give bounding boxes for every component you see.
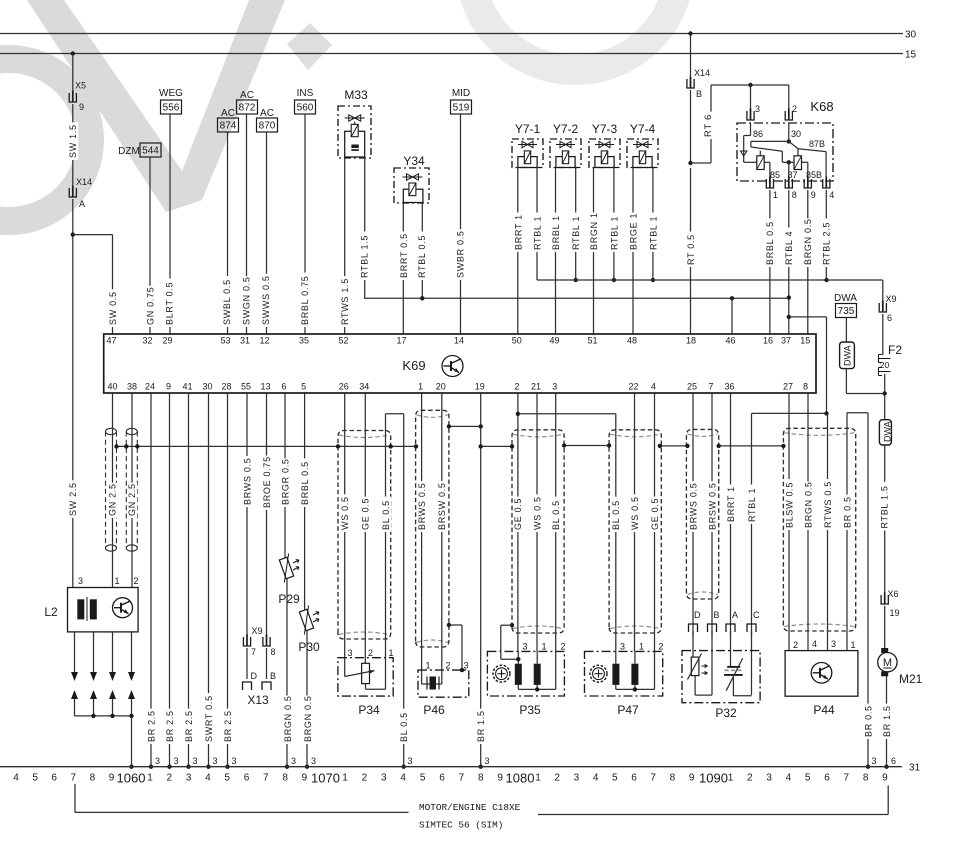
svg-text:48: 48: [627, 336, 637, 346]
svg-text:32: 32: [142, 336, 152, 346]
svg-text:BRGN 0.5: BRGN 0.5: [804, 481, 814, 528]
svg-text:20: 20: [436, 382, 446, 392]
svg-text:3: 3: [574, 773, 580, 784]
svg-text:30: 30: [905, 30, 917, 41]
svg-text:6: 6: [439, 773, 445, 784]
svg-text:AC: AC: [260, 108, 274, 119]
svg-text:3: 3: [620, 642, 625, 652]
svg-text:X14: X14: [76, 177, 92, 187]
svg-text:BRSW 0.5: BRSW 0.5: [437, 482, 447, 530]
svg-text:7: 7: [459, 773, 465, 784]
svg-text:1: 1: [773, 190, 778, 200]
svg-text:544: 544: [142, 146, 159, 157]
svg-text:SIMTEC 56 (SIM): SIMTEC 56 (SIM): [419, 820, 503, 831]
svg-text:35: 35: [299, 336, 309, 346]
svg-text:31: 31: [240, 336, 250, 346]
svg-text:RTWS 1.5: RTWS 1.5: [340, 278, 350, 325]
svg-text:3: 3: [311, 756, 316, 766]
svg-text:2: 2: [554, 773, 560, 784]
svg-text:2: 2: [167, 773, 173, 784]
svg-text:BRBL 1: BRBL 1: [551, 215, 561, 250]
svg-text:GE 0.5: GE 0.5: [361, 498, 371, 530]
svg-text:735: 735: [838, 306, 855, 317]
svg-text:25: 25: [687, 382, 697, 392]
svg-text:7: 7: [263, 773, 269, 784]
svg-text:BRGN 0.5: BRGN 0.5: [803, 218, 813, 265]
svg-text:6: 6: [891, 756, 896, 766]
svg-text:3: 3: [408, 756, 413, 766]
svg-text:SW 1.5: SW 1.5: [68, 124, 78, 158]
svg-text:RTBL 2.5: RTBL 2.5: [822, 222, 832, 265]
svg-text:Y7-1: Y7-1: [515, 122, 541, 136]
svg-text:BRSW 0.5: BRSW 0.5: [708, 482, 718, 530]
svg-text:DZM: DZM: [118, 146, 140, 157]
svg-text:K68: K68: [810, 99, 833, 114]
svg-text:8: 8: [792, 190, 797, 200]
svg-text:1: 1: [426, 661, 431, 671]
svg-text:A: A: [732, 610, 738, 620]
svg-text:RTBL 1: RTBL 1: [648, 216, 658, 250]
svg-text:7: 7: [650, 773, 656, 784]
svg-text:M21: M21: [899, 672, 923, 686]
svg-text:BR 2.5: BR 2.5: [147, 710, 157, 742]
svg-text:29: 29: [162, 336, 172, 346]
svg-text:SW 0.5: SW 0.5: [108, 291, 118, 325]
svg-text:9: 9: [109, 773, 115, 784]
svg-text:BRGE 1: BRGE 1: [629, 213, 639, 250]
svg-text:8: 8: [670, 773, 676, 784]
svg-text:D: D: [251, 671, 258, 681]
svg-text:RTBL 4: RTBL 4: [784, 231, 794, 265]
svg-text:Y7-4: Y7-4: [630, 122, 656, 136]
svg-text:RT 6: RT 6: [703, 114, 714, 137]
svg-text:3: 3: [381, 773, 387, 784]
svg-text:5: 5: [301, 382, 306, 392]
svg-text:6: 6: [631, 773, 637, 784]
svg-text:1: 1: [639, 642, 644, 652]
svg-text:6: 6: [281, 382, 286, 392]
svg-text:17: 17: [396, 336, 406, 346]
svg-text:9: 9: [497, 773, 503, 784]
svg-text:87B: 87B: [809, 139, 825, 149]
svg-text:BLSW 0.5: BLSW 0.5: [785, 482, 795, 528]
svg-text:5: 5: [805, 773, 811, 784]
svg-text:WS 0.5: WS 0.5: [340, 496, 350, 530]
svg-text:Y7-2: Y7-2: [553, 122, 579, 136]
svg-text:8: 8: [478, 773, 484, 784]
svg-text:2: 2: [793, 640, 798, 650]
svg-text:7: 7: [251, 647, 256, 657]
svg-text:P44: P44: [813, 703, 835, 717]
svg-text:3: 3: [766, 773, 772, 784]
svg-text:560: 560: [297, 103, 314, 114]
svg-text:6: 6: [244, 773, 250, 784]
svg-text:GN 2.5: GN 2.5: [127, 483, 137, 516]
svg-text:SWBR 0.5: SWBR 0.5: [456, 230, 466, 278]
svg-text:BRRT 1: BRRT 1: [513, 214, 523, 250]
svg-text:30: 30: [202, 382, 212, 392]
svg-text:2: 2: [561, 642, 566, 652]
svg-text:BR 0.5: BR 0.5: [864, 705, 874, 737]
svg-text:1060: 1060: [117, 771, 146, 786]
svg-text:RTBL 1: RTBL 1: [747, 488, 757, 522]
svg-text:5: 5: [420, 773, 426, 784]
svg-text:12: 12: [259, 336, 269, 346]
svg-text:9: 9: [79, 102, 84, 112]
svg-text:24: 24: [145, 382, 155, 392]
svg-text:26: 26: [339, 382, 349, 392]
svg-text:1: 1: [389, 648, 394, 658]
svg-text:3: 3: [213, 756, 218, 766]
svg-text:21: 21: [531, 382, 541, 392]
svg-text:46: 46: [725, 336, 735, 346]
svg-text:RTBL 1.5: RTBL 1.5: [880, 485, 890, 528]
svg-text:3: 3: [523, 642, 528, 652]
svg-text:8: 8: [863, 773, 869, 784]
svg-text:GE 0.5: GE 0.5: [513, 498, 523, 530]
svg-text:4: 4: [651, 382, 656, 392]
svg-text:BRWS 0.5: BRWS 0.5: [243, 458, 253, 505]
svg-text:X9: X9: [252, 626, 263, 636]
svg-text:3: 3: [552, 382, 557, 392]
svg-text:3: 3: [232, 756, 237, 766]
svg-text:9: 9: [811, 190, 816, 200]
svg-text:50: 50: [512, 336, 522, 346]
svg-text:2: 2: [362, 773, 368, 784]
svg-text:872: 872: [239, 103, 256, 114]
svg-text:7: 7: [71, 773, 77, 784]
svg-text:GE 0.5: GE 0.5: [650, 498, 660, 530]
svg-text:7: 7: [844, 773, 850, 784]
svg-text:1: 1: [542, 642, 547, 652]
svg-text:INS: INS: [297, 88, 314, 99]
svg-text:BRBL 0.5: BRBL 0.5: [300, 461, 310, 505]
svg-text:28: 28: [221, 382, 231, 392]
svg-text:RTBL 0.5: RTBL 0.5: [417, 235, 427, 278]
svg-text:86: 86: [753, 129, 763, 139]
svg-text:41: 41: [182, 382, 192, 392]
svg-text:M33: M33: [344, 88, 368, 102]
svg-text:P46: P46: [423, 703, 445, 717]
svg-text:SWBL 0.5: SWBL 0.5: [222, 279, 232, 325]
svg-text:P34: P34: [358, 703, 380, 717]
svg-text:X6: X6: [888, 589, 899, 599]
svg-text:8: 8: [90, 773, 96, 784]
svg-text:2: 2: [368, 648, 373, 658]
svg-text:30: 30: [791, 129, 801, 139]
svg-text:3: 3: [755, 104, 760, 114]
svg-text:BL 0.5: BL 0.5: [381, 500, 391, 530]
svg-text:9: 9: [302, 773, 308, 784]
svg-text:3: 3: [485, 756, 490, 766]
svg-text:3: 3: [193, 756, 198, 766]
svg-text:SW 2.5: SW 2.5: [68, 482, 78, 516]
svg-text:3: 3: [78, 576, 83, 586]
svg-text:8: 8: [271, 647, 276, 657]
svg-text:1080: 1080: [506, 771, 535, 786]
svg-text:1090: 1090: [699, 771, 728, 786]
svg-text:7: 7: [708, 382, 713, 392]
svg-text:15: 15: [905, 50, 917, 61]
svg-text:2: 2: [514, 382, 519, 392]
svg-text:3: 3: [831, 639, 836, 649]
svg-text:47: 47: [106, 336, 116, 346]
svg-text:9: 9: [689, 773, 695, 784]
svg-text:4: 4: [400, 773, 406, 784]
svg-text:RTBL 1: RTBL 1: [609, 216, 619, 250]
svg-text:13: 13: [260, 382, 270, 392]
svg-text:P30: P30: [298, 640, 320, 654]
svg-text:6: 6: [51, 773, 57, 784]
svg-text:34: 34: [359, 382, 369, 392]
svg-text:GN 0.75: GN 0.75: [146, 287, 156, 325]
svg-text:DWA: DWA: [843, 345, 853, 366]
svg-text:4: 4: [786, 773, 792, 784]
svg-text:BRGN 1: BRGN 1: [589, 212, 599, 250]
svg-text:BRRT 0.5: BRRT 0.5: [399, 233, 409, 278]
svg-text:AC: AC: [221, 108, 235, 119]
svg-text:BR 2.5: BR 2.5: [184, 710, 194, 742]
svg-text:1: 1: [115, 576, 120, 586]
svg-text:874: 874: [220, 121, 237, 132]
svg-text:3: 3: [348, 648, 353, 658]
svg-text:SWWS 0.5: SWWS 0.5: [261, 275, 271, 325]
svg-text:2: 2: [134, 576, 139, 586]
svg-text:1070: 1070: [311, 771, 340, 786]
svg-text:18: 18: [686, 336, 696, 346]
svg-text:B: B: [270, 671, 276, 681]
svg-text:6: 6: [824, 773, 830, 784]
svg-text:BR 0.5: BR 0.5: [843, 496, 853, 528]
svg-text:3: 3: [464, 661, 469, 671]
svg-text:WEG: WEG: [159, 88, 183, 99]
svg-text:14: 14: [454, 336, 464, 346]
svg-text:51: 51: [587, 336, 597, 346]
svg-text:19: 19: [475, 382, 485, 392]
svg-text:1: 1: [147, 773, 153, 784]
svg-text:27: 27: [783, 382, 793, 392]
svg-text:SWGN 0.5: SWGN 0.5: [242, 276, 252, 325]
svg-text:BRGN 0.5: BRGN 0.5: [303, 695, 313, 742]
svg-text:B: B: [696, 89, 702, 99]
svg-text:37: 37: [781, 336, 791, 346]
svg-text:556: 556: [163, 103, 180, 114]
svg-text:BR 2.5: BR 2.5: [165, 710, 175, 742]
svg-text:20: 20: [880, 360, 890, 370]
svg-text:4: 4: [593, 773, 599, 784]
svg-text:B: B: [714, 610, 720, 620]
svg-text:RT 0.5: RT 0.5: [686, 234, 696, 265]
svg-text:49: 49: [549, 336, 559, 346]
svg-text:BLRT 0.5: BLRT 0.5: [165, 282, 175, 325]
svg-text:BRWS 0.5: BRWS 0.5: [417, 483, 427, 530]
svg-text:WS 0.5: WS 0.5: [533, 496, 543, 530]
svg-text:3: 3: [291, 756, 296, 766]
svg-text:A: A: [79, 199, 85, 209]
svg-text:RTBL 1: RTBL 1: [533, 216, 543, 250]
svg-text:3: 3: [174, 756, 179, 766]
svg-text:8: 8: [282, 773, 288, 784]
svg-text:BRBL 0.5: BRBL 0.5: [765, 221, 775, 265]
svg-text:519: 519: [453, 103, 470, 114]
svg-text:2: 2: [446, 661, 451, 671]
svg-text:DWA: DWA: [834, 293, 857, 304]
svg-text:P29: P29: [278, 592, 300, 606]
svg-text:BR 2.5: BR 2.5: [223, 710, 233, 742]
svg-text:31: 31: [909, 763, 921, 774]
svg-text:16: 16: [763, 336, 773, 346]
svg-text:3: 3: [186, 773, 192, 784]
svg-text:WS 0.5: WS 0.5: [630, 496, 640, 530]
svg-text:BRBL 0.75: BRBL 0.75: [300, 276, 310, 326]
svg-text:19: 19: [890, 608, 900, 618]
svg-text:BR 1.5: BR 1.5: [882, 705, 892, 737]
svg-text:3: 3: [872, 756, 877, 766]
svg-text:P35: P35: [519, 703, 541, 717]
svg-text:Y34: Y34: [403, 154, 425, 168]
svg-text:L2: L2: [44, 605, 58, 619]
svg-text:1: 1: [851, 640, 856, 650]
svg-text:15: 15: [800, 336, 810, 346]
svg-text:4: 4: [205, 773, 211, 784]
svg-text:M: M: [883, 657, 892, 669]
svg-text:GN 2.5: GN 2.5: [108, 483, 118, 516]
svg-text:BRGR 0.5: BRGR 0.5: [281, 458, 291, 505]
svg-text:BL 0.5: BL 0.5: [611, 500, 621, 530]
svg-text:870: 870: [259, 121, 276, 132]
svg-text:5: 5: [224, 773, 230, 784]
svg-text:53: 53: [220, 336, 230, 346]
svg-text:F2: F2: [888, 343, 902, 357]
svg-text:BL 0.5: BL 0.5: [399, 712, 409, 742]
svg-text:RTWS 0.5: RTWS 0.5: [823, 481, 833, 528]
svg-text:BL 0.5: BL 0.5: [551, 500, 561, 530]
svg-text:SWRT 0.5: SWRT 0.5: [204, 695, 214, 742]
svg-text:3: 3: [155, 756, 160, 766]
svg-text:2: 2: [747, 773, 753, 784]
svg-text:DWA: DWA: [882, 421, 892, 442]
svg-text:5: 5: [32, 773, 38, 784]
svg-text:38: 38: [127, 382, 137, 392]
svg-text:Y7-3: Y7-3: [592, 122, 618, 136]
svg-text:5: 5: [612, 773, 618, 784]
svg-text:36: 36: [724, 382, 734, 392]
svg-text:MID: MID: [452, 88, 470, 99]
svg-text:P47: P47: [617, 703, 639, 717]
svg-text:P32: P32: [715, 706, 737, 720]
svg-text:40: 40: [107, 382, 117, 392]
svg-text:52: 52: [338, 336, 348, 346]
svg-text:C: C: [753, 610, 760, 620]
svg-text:4: 4: [829, 190, 834, 200]
svg-text:4: 4: [812, 639, 817, 649]
svg-text:2: 2: [659, 642, 664, 652]
svg-text:1: 1: [728, 773, 734, 784]
svg-text:BROE 0.75: BROE 0.75: [262, 456, 272, 508]
svg-text:X13: X13: [247, 693, 269, 707]
svg-text:MOTOR/ENGINE C18XE: MOTOR/ENGINE C18XE: [419, 802, 521, 813]
svg-text:RTBL 1.5: RTBL 1.5: [360, 235, 370, 278]
svg-text:55: 55: [241, 382, 251, 392]
svg-text:BRRT 1: BRRT 1: [726, 486, 736, 522]
svg-text:RTBL 1: RTBL 1: [571, 216, 581, 250]
svg-text:X14: X14: [694, 68, 710, 78]
svg-text:X5: X5: [75, 81, 86, 91]
svg-text:BRGN 0.5: BRGN 0.5: [283, 695, 293, 742]
svg-text:BR 1.5: BR 1.5: [476, 710, 486, 742]
svg-text:1: 1: [535, 773, 541, 784]
svg-text:85: 85: [770, 170, 780, 180]
svg-text:8: 8: [803, 382, 808, 392]
svg-text:1: 1: [418, 382, 423, 392]
svg-text:9: 9: [882, 773, 888, 784]
svg-text:22: 22: [628, 382, 638, 392]
svg-text:9: 9: [166, 382, 171, 392]
svg-text:K69: K69: [402, 358, 425, 373]
svg-text:4: 4: [13, 773, 19, 784]
svg-text:1: 1: [342, 773, 348, 784]
svg-text:AC: AC: [240, 90, 254, 101]
svg-text:X9: X9: [886, 294, 897, 304]
svg-text:D: D: [694, 610, 701, 620]
svg-text:BRWS 0.5: BRWS 0.5: [689, 483, 699, 530]
svg-text:6: 6: [887, 313, 892, 323]
